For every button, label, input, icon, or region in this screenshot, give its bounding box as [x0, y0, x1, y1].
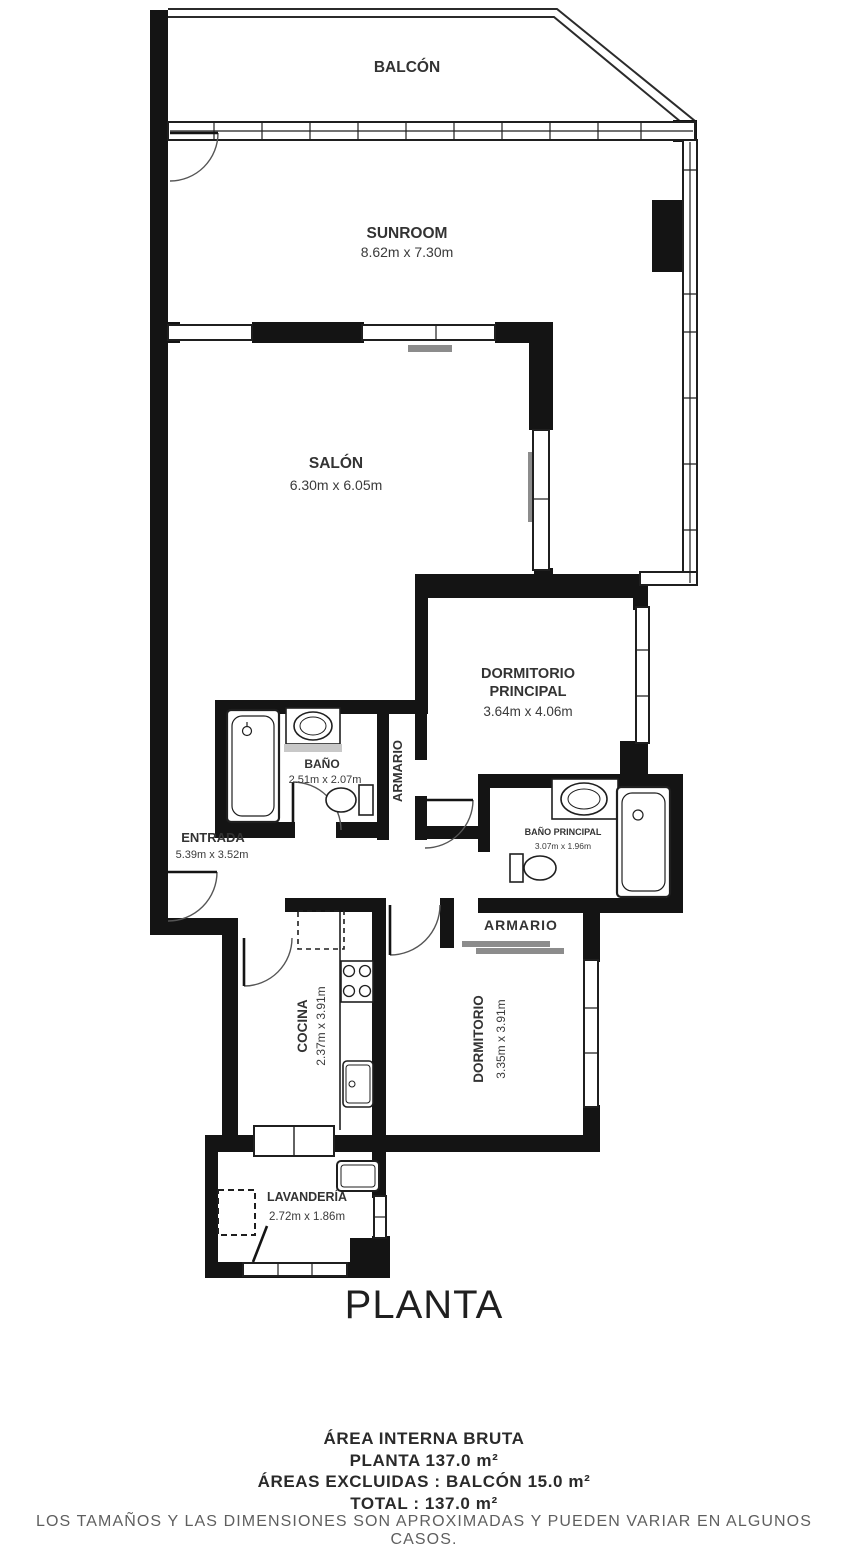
wall-bano-armario	[377, 700, 389, 840]
wall-lav-left	[205, 1135, 218, 1278]
dims-sunroom: 8.62m x 7.30m	[361, 244, 454, 260]
fridge-dashed	[298, 911, 344, 949]
window-ticks	[170, 122, 697, 1276]
window-lav-bottom	[243, 1263, 347, 1276]
area-summary-line4: TOTAL : 137.0 m²	[0, 1493, 848, 1515]
label-entrada: ENTRADA	[181, 830, 245, 845]
rail-armario-1	[462, 941, 550, 947]
door-arc-dormitorio	[390, 905, 440, 955]
dims-entrada: 5.39m x 3.52m	[176, 849, 249, 861]
kitchen-sink	[343, 1061, 373, 1107]
area-summary: ÁREA INTERNA BRUTA PLANTA 137.0 m² ÁREAS…	[0, 1428, 848, 1514]
label-sunroom: SUNROOM	[367, 225, 448, 242]
wall-dp-top	[415, 574, 648, 598]
wall-dp-left	[415, 574, 428, 714]
wall-salon-top-1	[252, 322, 364, 343]
door-arc-hall	[425, 800, 473, 848]
label-armario-dormitorio: ARMARIO	[484, 917, 558, 933]
fixtures	[218, 708, 670, 1235]
label-salon: SALÓN	[309, 454, 363, 472]
stove	[341, 961, 373, 1002]
window-dp-right	[636, 607, 649, 743]
page-title: PLANTA	[345, 1283, 504, 1327]
walls	[150, 10, 697, 1278]
wall-armariobox-left	[440, 898, 454, 948]
label-cocina: COCINA	[295, 999, 310, 1052]
appliance-dashed	[218, 1190, 255, 1235]
rail-salon-door-leaf	[528, 452, 532, 522]
dims-salon: 6.30m x 6.05m	[290, 477, 383, 493]
area-summary-line2: PLANTA 137.0 m²	[0, 1450, 848, 1472]
sink-bano-principal	[552, 779, 618, 819]
wall-lav-corner	[350, 1238, 390, 1278]
wall-cocina-left	[222, 918, 238, 1143]
label-armario-pasillo: ARMARIO	[390, 740, 405, 802]
bathtub-bano	[227, 710, 279, 822]
label-dp-2: PRINCIPAL	[489, 684, 566, 700]
dims-bano: 2.51m x 2.07m	[289, 774, 362, 786]
washer-box	[254, 1126, 334, 1156]
door-leaf-lavanderia	[253, 1226, 267, 1262]
wall-salon-right-upper	[529, 322, 553, 430]
wall-left-outer	[150, 10, 168, 935]
windows	[168, 122, 697, 1276]
window-sunroom-bottomright	[640, 572, 697, 585]
boiler	[337, 1161, 379, 1191]
area-summary-line1: ÁREA INTERNA BRUTA	[0, 1428, 848, 1450]
area-summary-line3: ÁREAS EXCLUIDAS : BALCÓN 15.0 m²	[0, 1471, 848, 1493]
label-lavanderia: LAVANDERÍA	[267, 1189, 347, 1204]
dims-cocina: 2.37m x 3.91m	[314, 986, 328, 1065]
wall-armario-right-1	[415, 714, 427, 760]
window-salon-top-2	[362, 325, 495, 340]
rail-armario-2	[476, 948, 564, 954]
window-salon-right	[533, 430, 549, 570]
label-bano: BAÑO	[304, 756, 339, 771]
label-dp-1: DORMITORIO	[481, 666, 575, 682]
floor-plan-page: BALCÓN SUNROOM 8.62m x 7.30m SALÓN 6.30m…	[0, 0, 848, 1555]
wall-banop-bottom	[478, 898, 683, 913]
label-balcon: BALCÓN	[374, 58, 440, 76]
room-labels: BALCÓN SUNROOM 8.62m x 7.30m SALÓN 6.30m…	[176, 58, 602, 1223]
wall-bano-bottom-2	[336, 822, 382, 838]
window-salon-top-1	[168, 325, 252, 340]
dims-lavanderia: 2.72m x 1.86m	[269, 1211, 345, 1223]
label-dormitorio: DORMITORIO	[471, 995, 486, 1083]
dims-dp: 3.64m x 4.06m	[483, 704, 572, 719]
floor-plan-drawing: BALCÓN SUNROOM 8.62m x 7.30m SALÓN 6.30m…	[0, 0, 848, 1360]
sink-bano	[284, 708, 342, 752]
label-bano-principal: BAÑO PRINCIPAL	[525, 827, 602, 837]
door-arc-entrada	[168, 872, 217, 921]
bathtub-bano-principal	[617, 787, 670, 897]
wall-cocina-dorm-divider	[372, 898, 386, 1198]
wall-dorm-right-top	[583, 898, 600, 962]
dims-dormitorio: 3.35m x 3.91m	[494, 999, 508, 1078]
door-arc-cocina	[244, 938, 292, 986]
disclaimer-text: LOS TAMAÑOS Y LAS DIMENSIONES SON APROXI…	[0, 1513, 848, 1549]
rail-salon	[408, 345, 452, 352]
dims-bano-principal: 3.07m x 1.96m	[535, 841, 591, 851]
window-dorm-right	[584, 960, 598, 1107]
toilet-bano-principal	[510, 854, 556, 882]
wall-cocina-top	[285, 898, 385, 912]
toilet-bano	[326, 785, 373, 815]
